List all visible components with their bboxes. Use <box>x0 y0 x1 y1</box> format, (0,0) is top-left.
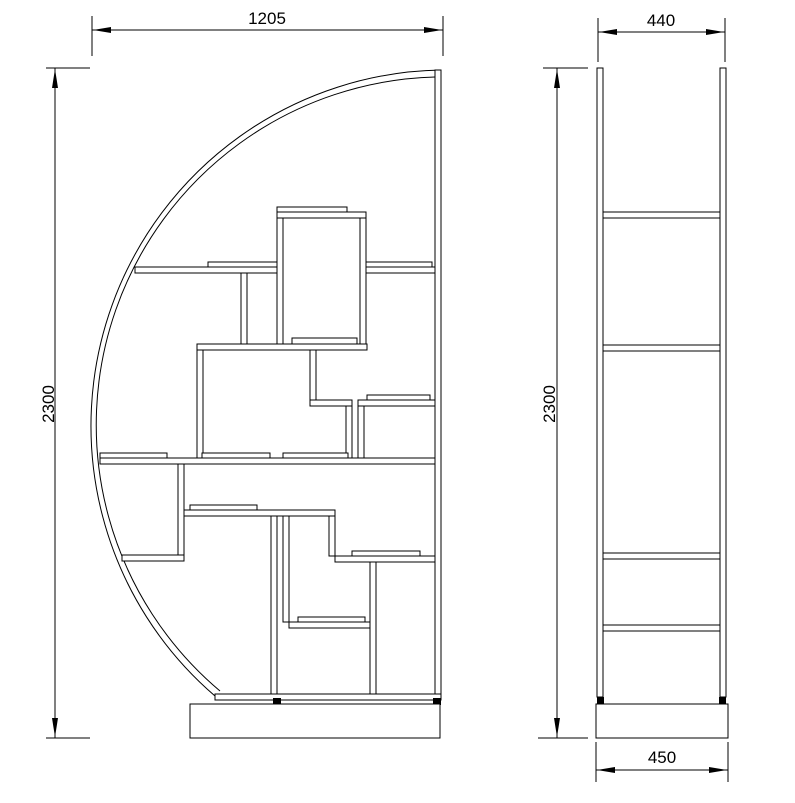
shelf-plank <box>289 622 370 628</box>
divider-plank <box>346 406 352 458</box>
curved-frame-arc <box>91 70 441 696</box>
front-height-dimension: 2300 <box>39 68 90 738</box>
divider-plank <box>370 562 376 697</box>
divider-plank <box>241 273 247 344</box>
divider-plank <box>310 350 316 405</box>
shelf-riser <box>100 453 167 458</box>
shelf-plank <box>603 553 720 559</box>
shelf-riser <box>190 505 257 510</box>
bookshelf-technical-drawing: 1205 2300 <box>0 0 795 803</box>
bottom-panel <box>215 694 441 700</box>
side-view: 440 2300 45 <box>538 11 728 782</box>
arrow-right-icon <box>706 29 724 35</box>
side-base-depth-dimension: 450 <box>596 742 728 782</box>
shelf-plank <box>335 556 435 562</box>
shelf-riser <box>292 338 357 344</box>
shelf-plank <box>366 267 435 273</box>
arrow-down-icon <box>554 718 560 737</box>
drawing-canvas: 1205 2300 <box>0 0 795 803</box>
arrow-down-icon <box>52 718 58 737</box>
side-panel-back-edge <box>720 68 726 697</box>
side-height-dimension: 2300 <box>538 68 588 738</box>
shelf-plank <box>603 212 720 218</box>
shelf-riser <box>352 551 420 556</box>
divider-plank <box>358 406 364 458</box>
dimension-text: 1205 <box>248 9 286 28</box>
shelf-plank <box>603 345 720 351</box>
adjustable-foot <box>597 697 604 704</box>
divider-plank <box>178 464 184 555</box>
shelf-plank <box>277 212 366 218</box>
shelf-plank <box>135 267 277 273</box>
inner-arc <box>96 77 435 691</box>
side-depth-dimension: 440 <box>598 11 725 62</box>
arrow-left-icon <box>597 767 615 773</box>
side-shelves <box>603 212 720 631</box>
outer-arc <box>91 70 441 696</box>
shelf-plank <box>358 400 435 406</box>
shelf-riser <box>367 395 430 400</box>
arrow-right-icon <box>424 27 442 33</box>
dimension-text: 450 <box>648 748 676 767</box>
shelf-riser <box>208 262 277 267</box>
shelf-plank <box>122 555 184 561</box>
shelf-riser <box>298 617 365 622</box>
divider-plank <box>277 218 283 344</box>
divider-plank <box>360 218 366 344</box>
dimension-text: 440 <box>647 11 675 30</box>
shelf-plank <box>184 510 335 516</box>
adjustable-foot <box>719 697 726 704</box>
base-plinth <box>190 704 440 738</box>
shelf-riser <box>283 453 348 458</box>
arrow-left-icon <box>599 29 617 35</box>
right-side-panel <box>435 70 441 697</box>
shelf-plank <box>197 344 367 350</box>
divider-plank <box>271 516 277 697</box>
dimension-text: 2300 <box>540 385 559 423</box>
arrow-left-icon <box>93 27 111 33</box>
divider-plank <box>329 516 335 556</box>
divider-plank <box>197 350 203 458</box>
shelf-plank <box>603 625 720 631</box>
shelf-plank <box>100 458 435 464</box>
arrow-up-icon <box>52 69 58 88</box>
front-view: 1205 2300 <box>39 9 443 738</box>
arrow-up-icon <box>554 69 560 88</box>
shelf-riser <box>366 262 432 267</box>
side-panel-front-edge <box>597 68 603 697</box>
dimension-text: 2300 <box>39 385 58 423</box>
divider-plank <box>283 516 289 622</box>
shelf-plank <box>310 400 352 406</box>
arrow-right-icon <box>709 767 727 773</box>
base-plinth <box>596 704 728 738</box>
front-width-dimension: 1205 <box>92 9 443 56</box>
shelf-riser <box>202 453 270 458</box>
shelf-riser <box>277 207 347 212</box>
